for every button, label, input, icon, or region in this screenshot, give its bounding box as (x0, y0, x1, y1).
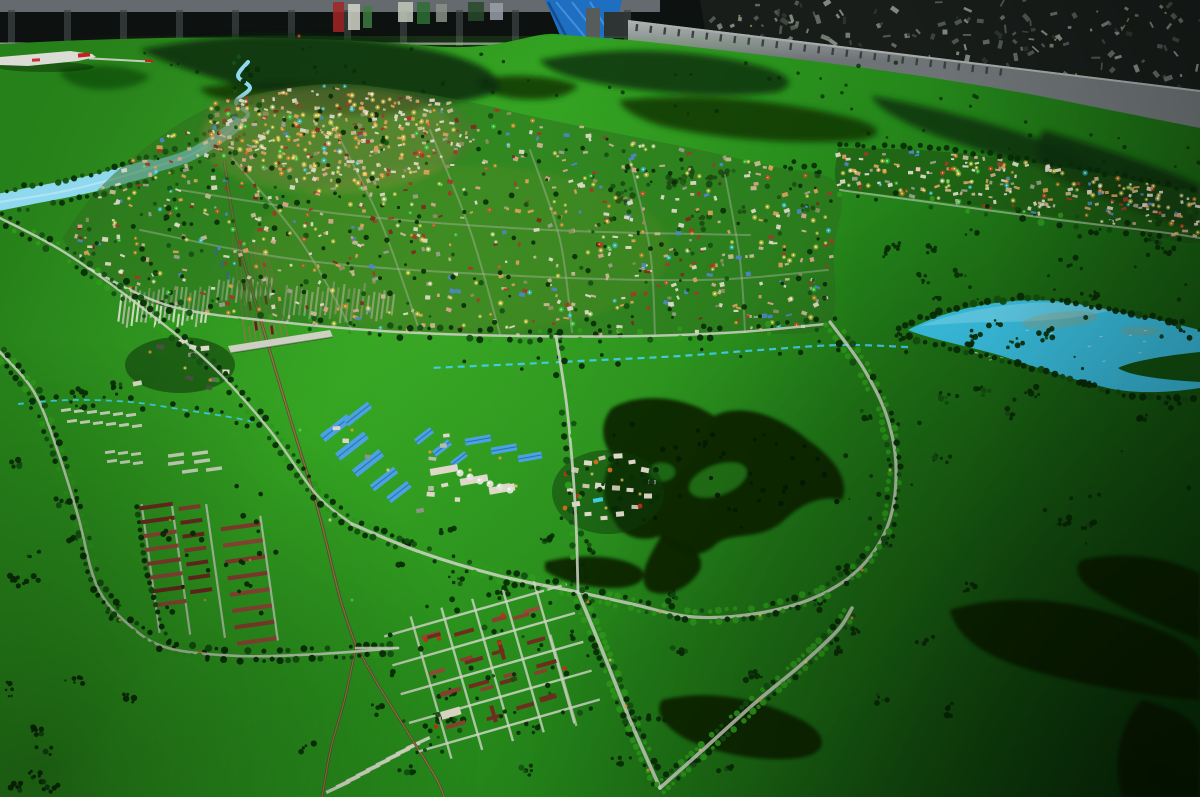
scale-model-scene (0, 0, 1200, 797)
vignette (0, 0, 1200, 797)
photo-of-city-scale-model (0, 0, 1200, 797)
